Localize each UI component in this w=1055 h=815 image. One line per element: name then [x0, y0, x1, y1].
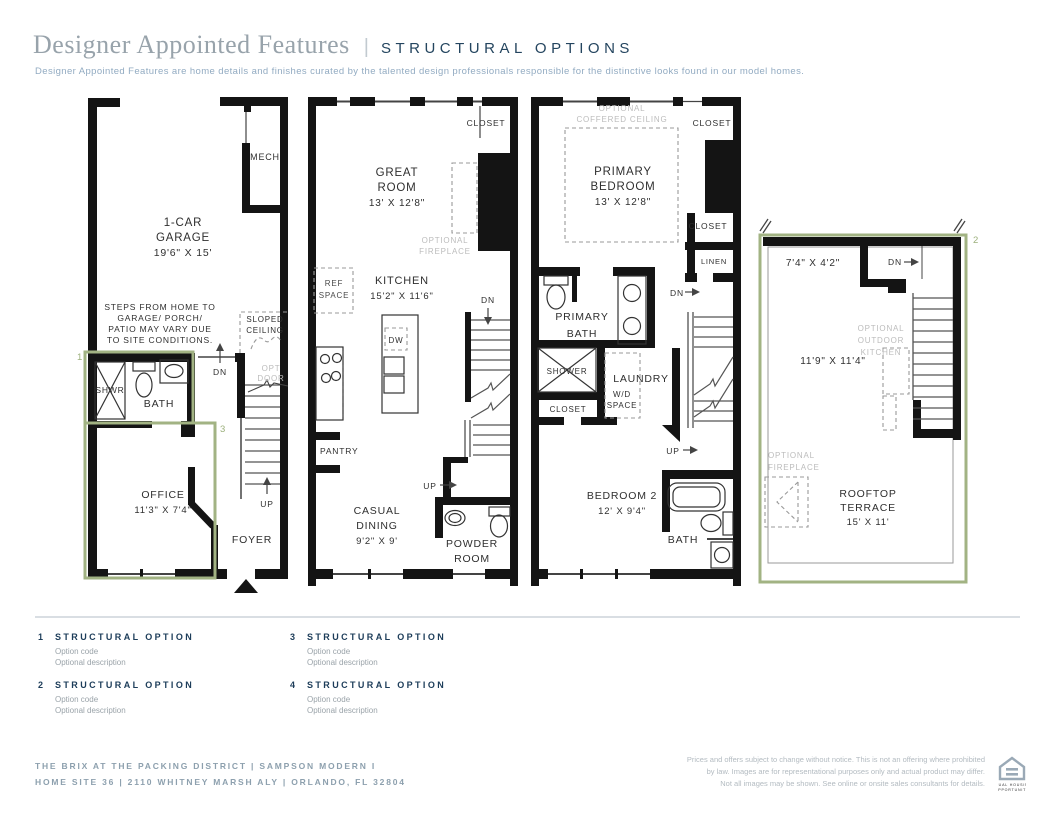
casual-dining-dim: 9'2" X 9'	[356, 536, 398, 547]
toilet-bowl	[136, 373, 152, 397]
legal-disclaimer: Prices and offers subject to change with…	[600, 754, 985, 790]
steps-note-2: GARAGE/ PORCH/	[117, 313, 202, 323]
primary-bedroom-label-1: PRIMARY	[594, 166, 652, 178]
legal-line-3: Not all images may be shown. See online …	[600, 778, 985, 790]
vanity-basin	[624, 318, 641, 335]
wall-break-marks	[760, 219, 965, 233]
foyer-label: FOYER	[232, 534, 272, 546]
casual-dining-label-1: CASUAL	[354, 505, 401, 517]
rooftop-terrace-label-1: ROOFTOP	[839, 488, 896, 500]
toilet-bowl	[701, 515, 721, 532]
steps-note-4: TO SITE CONDITIONS.	[107, 335, 213, 345]
bath-label: BATH	[668, 534, 698, 546]
stair-break-lines	[471, 374, 510, 418]
legend-title: STRUCTURAL OPTION	[307, 632, 446, 642]
powder-room-label-1: POWDER	[446, 538, 498, 550]
up-arrowhead-icon	[449, 481, 457, 489]
mech-label: MECH	[250, 152, 280, 162]
legend-code: Option code	[307, 647, 520, 656]
opt-door-label-2: DOOR	[257, 374, 284, 383]
powder-room-label-2: ROOM	[454, 553, 490, 565]
up-label: UP	[423, 481, 436, 491]
steps-note-1: STEPS FROM HOME TO	[104, 302, 215, 312]
burner	[333, 354, 342, 363]
dn-label: DN	[670, 288, 684, 298]
oven-1	[384, 357, 404, 374]
legend-item-1: 1STRUCTURAL OPTION Option code Optional …	[38, 632, 268, 667]
rooftop-fireplace-label-1: OPTIONAL	[768, 451, 815, 460]
burner	[322, 374, 331, 383]
legend-item-4: 4STRUCTURAL OPTION Option code Optional …	[290, 680, 520, 715]
dw-label: DW	[389, 336, 404, 345]
outdoor-kitchen-label-1: OPTIONAL	[858, 324, 905, 333]
up-arrowhead-icon	[263, 477, 271, 485]
sink-basin	[165, 365, 183, 378]
stair-treads-upper	[471, 320, 510, 370]
linen-label: LINEN	[701, 257, 727, 266]
dn-arrowhead-icon	[216, 343, 224, 351]
legend-desc: Optional description	[55, 706, 268, 715]
primary-bedroom-label-2: BEDROOM	[590, 181, 655, 193]
optional-fireplace-outline	[452, 163, 477, 233]
page-description: Designer Appointed Features are home det…	[35, 66, 804, 77]
shwr-label: SHWR	[95, 385, 124, 395]
casual-dining-label-2: DINING	[356, 520, 398, 532]
great-room-dim: 13' X 12'8"	[369, 198, 425, 209]
homesite-address: HOME SITE 36 | 2110 WHITNEY MARSH ALY | …	[35, 774, 406, 790]
wd-space-label-1: W/D	[613, 390, 631, 399]
legend-code: Option code	[55, 647, 268, 656]
tub-inner	[673, 487, 720, 507]
kitchen-island	[382, 315, 418, 413]
legend-item-2: 2STRUCTURAL OPTION Option code Optional …	[38, 680, 268, 715]
outdoor-kitchen-label-2: OUTDOOR	[858, 336, 905, 345]
fireplace-outline	[765, 477, 808, 527]
first-floor-plan: MECH 1-CAR GARAGE 19'6" X 15' STEPS FROM…	[75, 95, 295, 595]
section-divider	[35, 616, 1020, 618]
up-label: UP	[260, 499, 273, 509]
legend-title: STRUCTURAL OPTION	[307, 680, 446, 690]
legend-desc: Optional description	[307, 706, 520, 715]
bedroom2-dim: 12' X 9'4"	[598, 506, 646, 517]
office-label: OFFICE	[141, 489, 184, 501]
option-1-marker: 1	[77, 352, 83, 363]
optional-fireplace-label-1: OPTIONAL	[422, 236, 469, 245]
legal-line-1: Prices and offers subject to change with…	[600, 754, 985, 766]
option-2-marker: 2	[973, 235, 979, 246]
up-arrowhead-icon	[690, 446, 698, 454]
opt-door-label-1: OPT	[262, 364, 281, 373]
shower-label: SHOWER	[547, 367, 588, 376]
toilet-tank	[544, 276, 568, 285]
logo-text-2: OPPORTUNITY	[998, 788, 1026, 792]
legend-desc: Optional description	[55, 658, 268, 667]
legend-code: Option code	[307, 695, 520, 704]
legend-num: 2	[38, 680, 55, 690]
vanity-basin	[624, 285, 641, 302]
primary-bath-label-2: BATH	[567, 328, 597, 340]
optional-fireplace-label-2: FIREPLACE	[419, 247, 471, 256]
legend-code: Option code	[55, 695, 268, 704]
outdoor-kitchen-outline-2	[883, 396, 896, 430]
dn-arrowhead-icon	[692, 288, 700, 296]
legend-num: 3	[290, 632, 307, 642]
upper-dim-label: 7'4" X 4'2"	[786, 258, 840, 269]
stair-treads-upper	[694, 317, 733, 347]
garage-label-1: 1-CAR	[164, 217, 203, 229]
legend-item-3: 3STRUCTURAL OPTION Option code Optional …	[290, 632, 520, 667]
rooftop-lines	[904, 246, 953, 419]
sloped-ceiling-label-1: SLOPED	[246, 315, 283, 324]
second-floor-plan: CLOSET GREAT ROOM 13' X 12'8" OPTIONAL F…	[308, 95, 518, 595]
ref-space-label-2: SPACE	[319, 291, 350, 300]
dn-label: DN	[481, 295, 495, 305]
title-separator: |	[364, 36, 369, 59]
dn-label: DN	[213, 367, 227, 377]
powder-toilet-bowl	[491, 515, 508, 537]
great-room-label-1: GREAT	[376, 167, 419, 179]
rooftop-plan: 2 7'4" X 4'2" DN OPTIONAL OUTDOOR KITCHE…	[755, 215, 985, 585]
dn-arrowhead-icon	[484, 317, 492, 325]
third-floor-plan: OPTIONAL COFFERED CEILING CLOSET PRIMARY…	[531, 95, 741, 595]
powder-sink-basin	[449, 514, 461, 523]
sink-basin	[715, 548, 730, 563]
pantry-label: PANTRY	[320, 446, 359, 456]
closet-label: CLOSET	[467, 118, 506, 128]
floorplan-sheet: Designer Appointed Features | STRUCTURAL…	[0, 0, 1055, 815]
stair-break-lines	[694, 357, 733, 417]
entry-arrow-icon	[234, 579, 258, 593]
legend-num: 1	[38, 632, 55, 642]
sink-counter	[160, 360, 188, 383]
oven-2	[384, 376, 404, 393]
up-label: UP	[666, 446, 679, 456]
powder-sink	[445, 511, 465, 526]
primary-bath-label-1: PRIMARY	[555, 311, 608, 323]
primary-bedroom-dim: 13' X 12'8"	[595, 197, 651, 208]
rooftop-terrace-dim: 15' X 11'	[847, 517, 890, 528]
legend-desc: Optional description	[307, 658, 520, 667]
steps-note-3: PATIO MAY VARY DUE	[108, 324, 212, 334]
burner	[332, 372, 341, 381]
dn-arrowhead-icon	[911, 258, 919, 266]
toilet-tank	[723, 512, 733, 535]
option-3-marker: 3	[220, 424, 226, 435]
equal-housing-logo: EQUAL HOUSING OPPORTUNITY	[998, 756, 1026, 794]
rooftop-dashed	[765, 348, 909, 527]
stair-treads-lower	[473, 425, 510, 455]
page-tagline: STRUCTURAL OPTIONS	[381, 40, 634, 57]
legal-line-2: by law. Images are for representational …	[600, 766, 985, 778]
coffered-label-1: OPTIONAL	[599, 104, 646, 113]
rooftop-terrace-label-2: TERRACE	[840, 502, 896, 514]
sloped-ceiling-label-2: CEILING	[246, 326, 284, 335]
kitchen-label: KITCHEN	[375, 275, 429, 287]
ref-space-label-1: REF	[325, 279, 343, 288]
laundry-label: LAUNDRY	[613, 373, 669, 385]
vanity	[618, 276, 646, 344]
closet-top-label: CLOSET	[693, 118, 732, 128]
dn-label: DN	[888, 257, 902, 267]
footer-community-block: THE BRIX AT THE PACKING DISTRICT | SAMPS…	[35, 758, 406, 790]
legend-num: 4	[290, 680, 307, 690]
kitchen-dim: 15'2" X 11'6"	[370, 291, 433, 302]
logo-text-1: EQUAL HOUSING	[998, 783, 1026, 787]
office-dim: 11'3" X 7'4"	[134, 505, 191, 516]
bedroom2-label: BEDROOM 2	[587, 490, 657, 502]
burner	[321, 355, 330, 364]
terrace-edge	[768, 247, 953, 563]
community-name: THE BRIX AT THE PACKING DISTRICT | SAMPS…	[35, 758, 406, 774]
garage-label-2: GARAGE	[156, 232, 210, 244]
legend-title: STRUCTURAL OPTION	[55, 680, 194, 690]
great-room-label-2: ROOM	[378, 182, 417, 194]
closet-hall-label: CLOSET	[550, 405, 587, 414]
closet-mid-label: CLOSET	[689, 221, 728, 231]
fireplace-chevron	[777, 482, 798, 522]
toilet-bowl	[547, 285, 565, 309]
mid-dim-label: 11'9" X 11'4"	[800, 356, 865, 367]
stair-treads	[245, 385, 280, 484]
toilet-tank	[133, 362, 155, 371]
page-title: Designer Appointed Features	[33, 30, 350, 60]
coffered-label-2: COFFERED CEILING	[576, 115, 667, 124]
rooftop-fireplace-label-2: FIREPLACE	[768, 463, 820, 472]
wd-space-label-2: SPACE	[607, 401, 638, 410]
bath-label: BATH	[144, 398, 174, 410]
garage-dim: 19'6" X 15'	[154, 247, 213, 259]
page-header: Designer Appointed Features | STRUCTURAL…	[33, 30, 634, 60]
floor1-walls	[88, 97, 288, 593]
legend-title: STRUCTURAL OPTION	[55, 632, 194, 642]
outdoor-kitchen-label-3: KITCHEN	[861, 348, 902, 357]
